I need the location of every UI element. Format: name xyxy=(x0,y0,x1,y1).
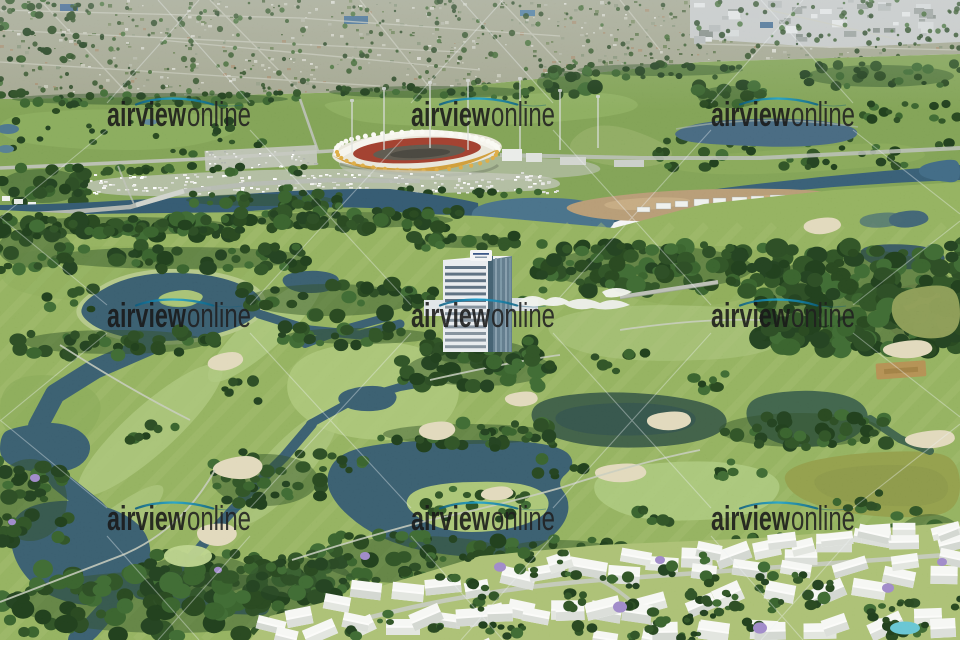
svg-text:airview: airview xyxy=(711,500,790,538)
svg-text:airview: airview xyxy=(711,96,790,134)
svg-text:online: online xyxy=(491,96,555,134)
svg-text:airview: airview xyxy=(107,500,186,538)
svg-text:online: online xyxy=(187,297,251,335)
svg-text:airview: airview xyxy=(107,96,186,134)
svg-text:online: online xyxy=(791,96,855,134)
svg-text:airview: airview xyxy=(411,500,490,538)
svg-text:online: online xyxy=(791,297,855,335)
svg-text:online: online xyxy=(187,500,251,538)
svg-text:online: online xyxy=(791,500,855,538)
svg-text:airview: airview xyxy=(411,96,490,134)
svg-text:airview: airview xyxy=(107,297,186,335)
svg-text:airview: airview xyxy=(411,297,490,335)
svg-text:airview: airview xyxy=(711,297,790,335)
svg-text:online: online xyxy=(491,297,555,335)
svg-text:online: online xyxy=(187,96,251,134)
svg-text:online: online xyxy=(491,500,555,538)
